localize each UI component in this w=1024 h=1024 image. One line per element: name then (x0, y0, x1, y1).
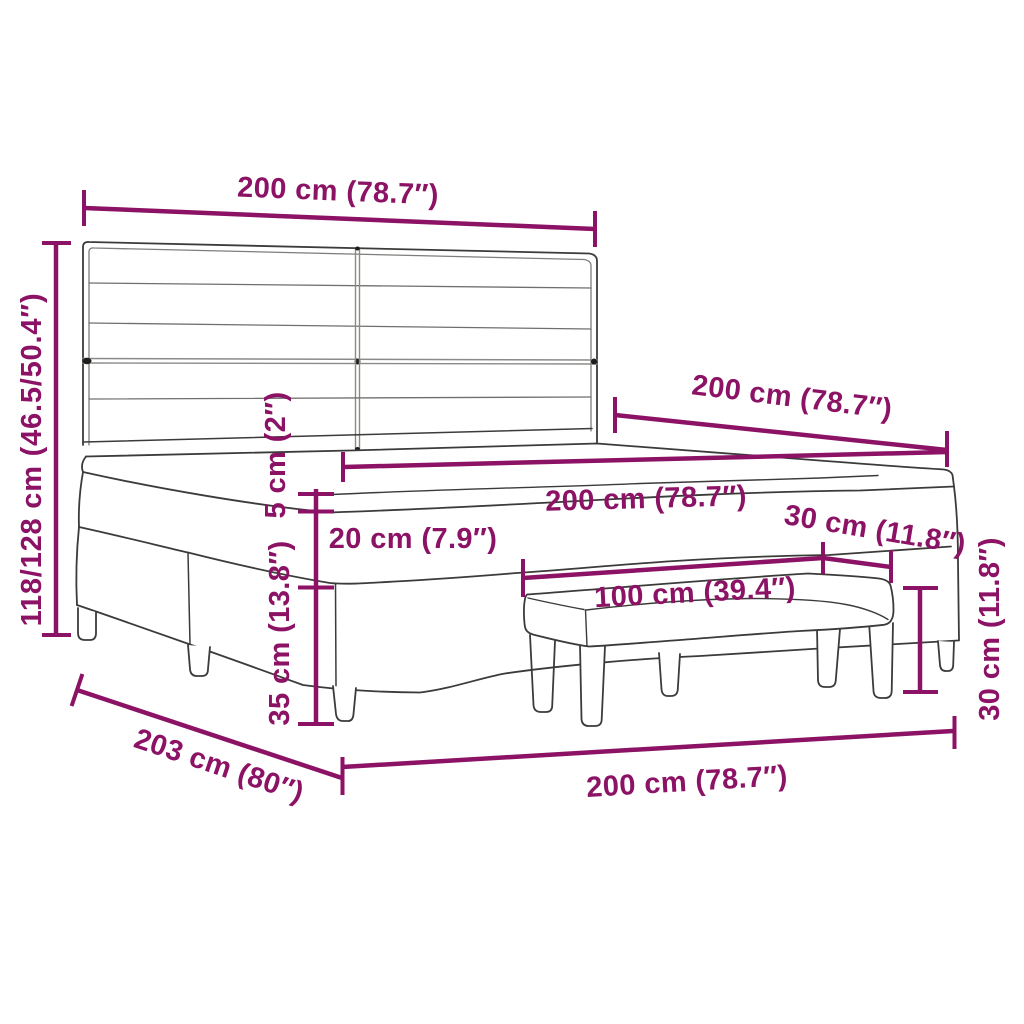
svg-text:5 cm (2″): 5 cm (2″) (260, 391, 292, 518)
svg-text:30 cm (11.8″): 30 cm (11.8″) (974, 537, 1006, 721)
svg-text:200 cm (78.7″): 200 cm (78.7″) (545, 480, 747, 518)
svg-text:20 cm (7.9″): 20 cm (7.9″) (329, 523, 498, 555)
svg-text:35 cm (13.8″): 35 cm (13.8″) (264, 540, 296, 725)
svg-text:118/128 cm (46.5/50.4″): 118/128 cm (46.5/50.4″) (16, 293, 48, 627)
